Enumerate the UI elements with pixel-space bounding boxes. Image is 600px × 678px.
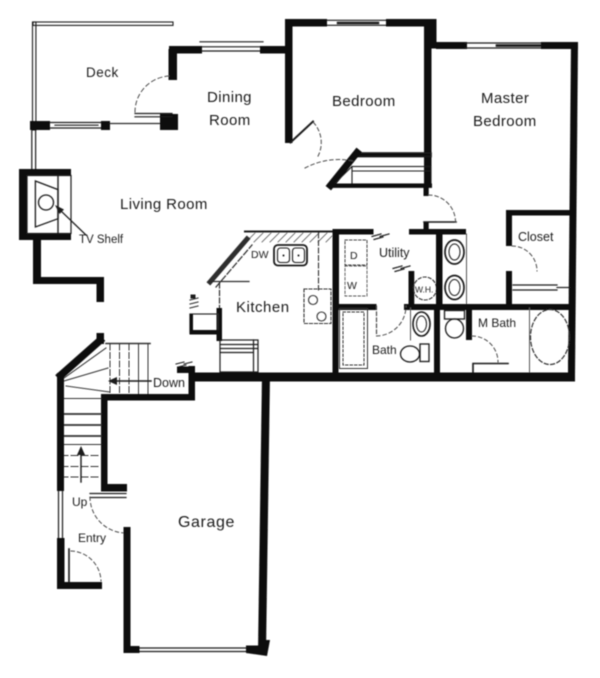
svg-text:W: W: [347, 280, 357, 292]
svg-text:TV Shelf: TV Shelf: [79, 234, 124, 246]
svg-text:Room: Room: [209, 112, 251, 129]
svg-text:Dining: Dining: [207, 89, 252, 106]
svg-text:Bath: Bath: [372, 343, 397, 357]
svg-text:Down: Down: [153, 376, 185, 390]
svg-text:Utility: Utility: [379, 246, 410, 260]
svg-text:D: D: [350, 250, 358, 262]
svg-text:W.H.: W.H.: [415, 285, 433, 295]
svg-text:Kitchen: Kitchen: [236, 299, 290, 316]
svg-text:Closet: Closet: [518, 230, 554, 244]
svg-text:Bedroom: Bedroom: [332, 93, 396, 110]
svg-text:Bedroom: Bedroom: [473, 113, 537, 130]
svg-text:Living Room: Living Room: [120, 196, 208, 213]
svg-text:Entry: Entry: [78, 531, 106, 545]
svg-text:Up: Up: [72, 495, 88, 509]
svg-text:DW: DW: [251, 249, 269, 261]
svg-text:Master: Master: [481, 90, 529, 107]
svg-text:Deck: Deck: [86, 65, 119, 80]
svg-text:Garage: Garage: [178, 514, 235, 531]
svg-text:M Bath: M Bath: [478, 316, 516, 330]
